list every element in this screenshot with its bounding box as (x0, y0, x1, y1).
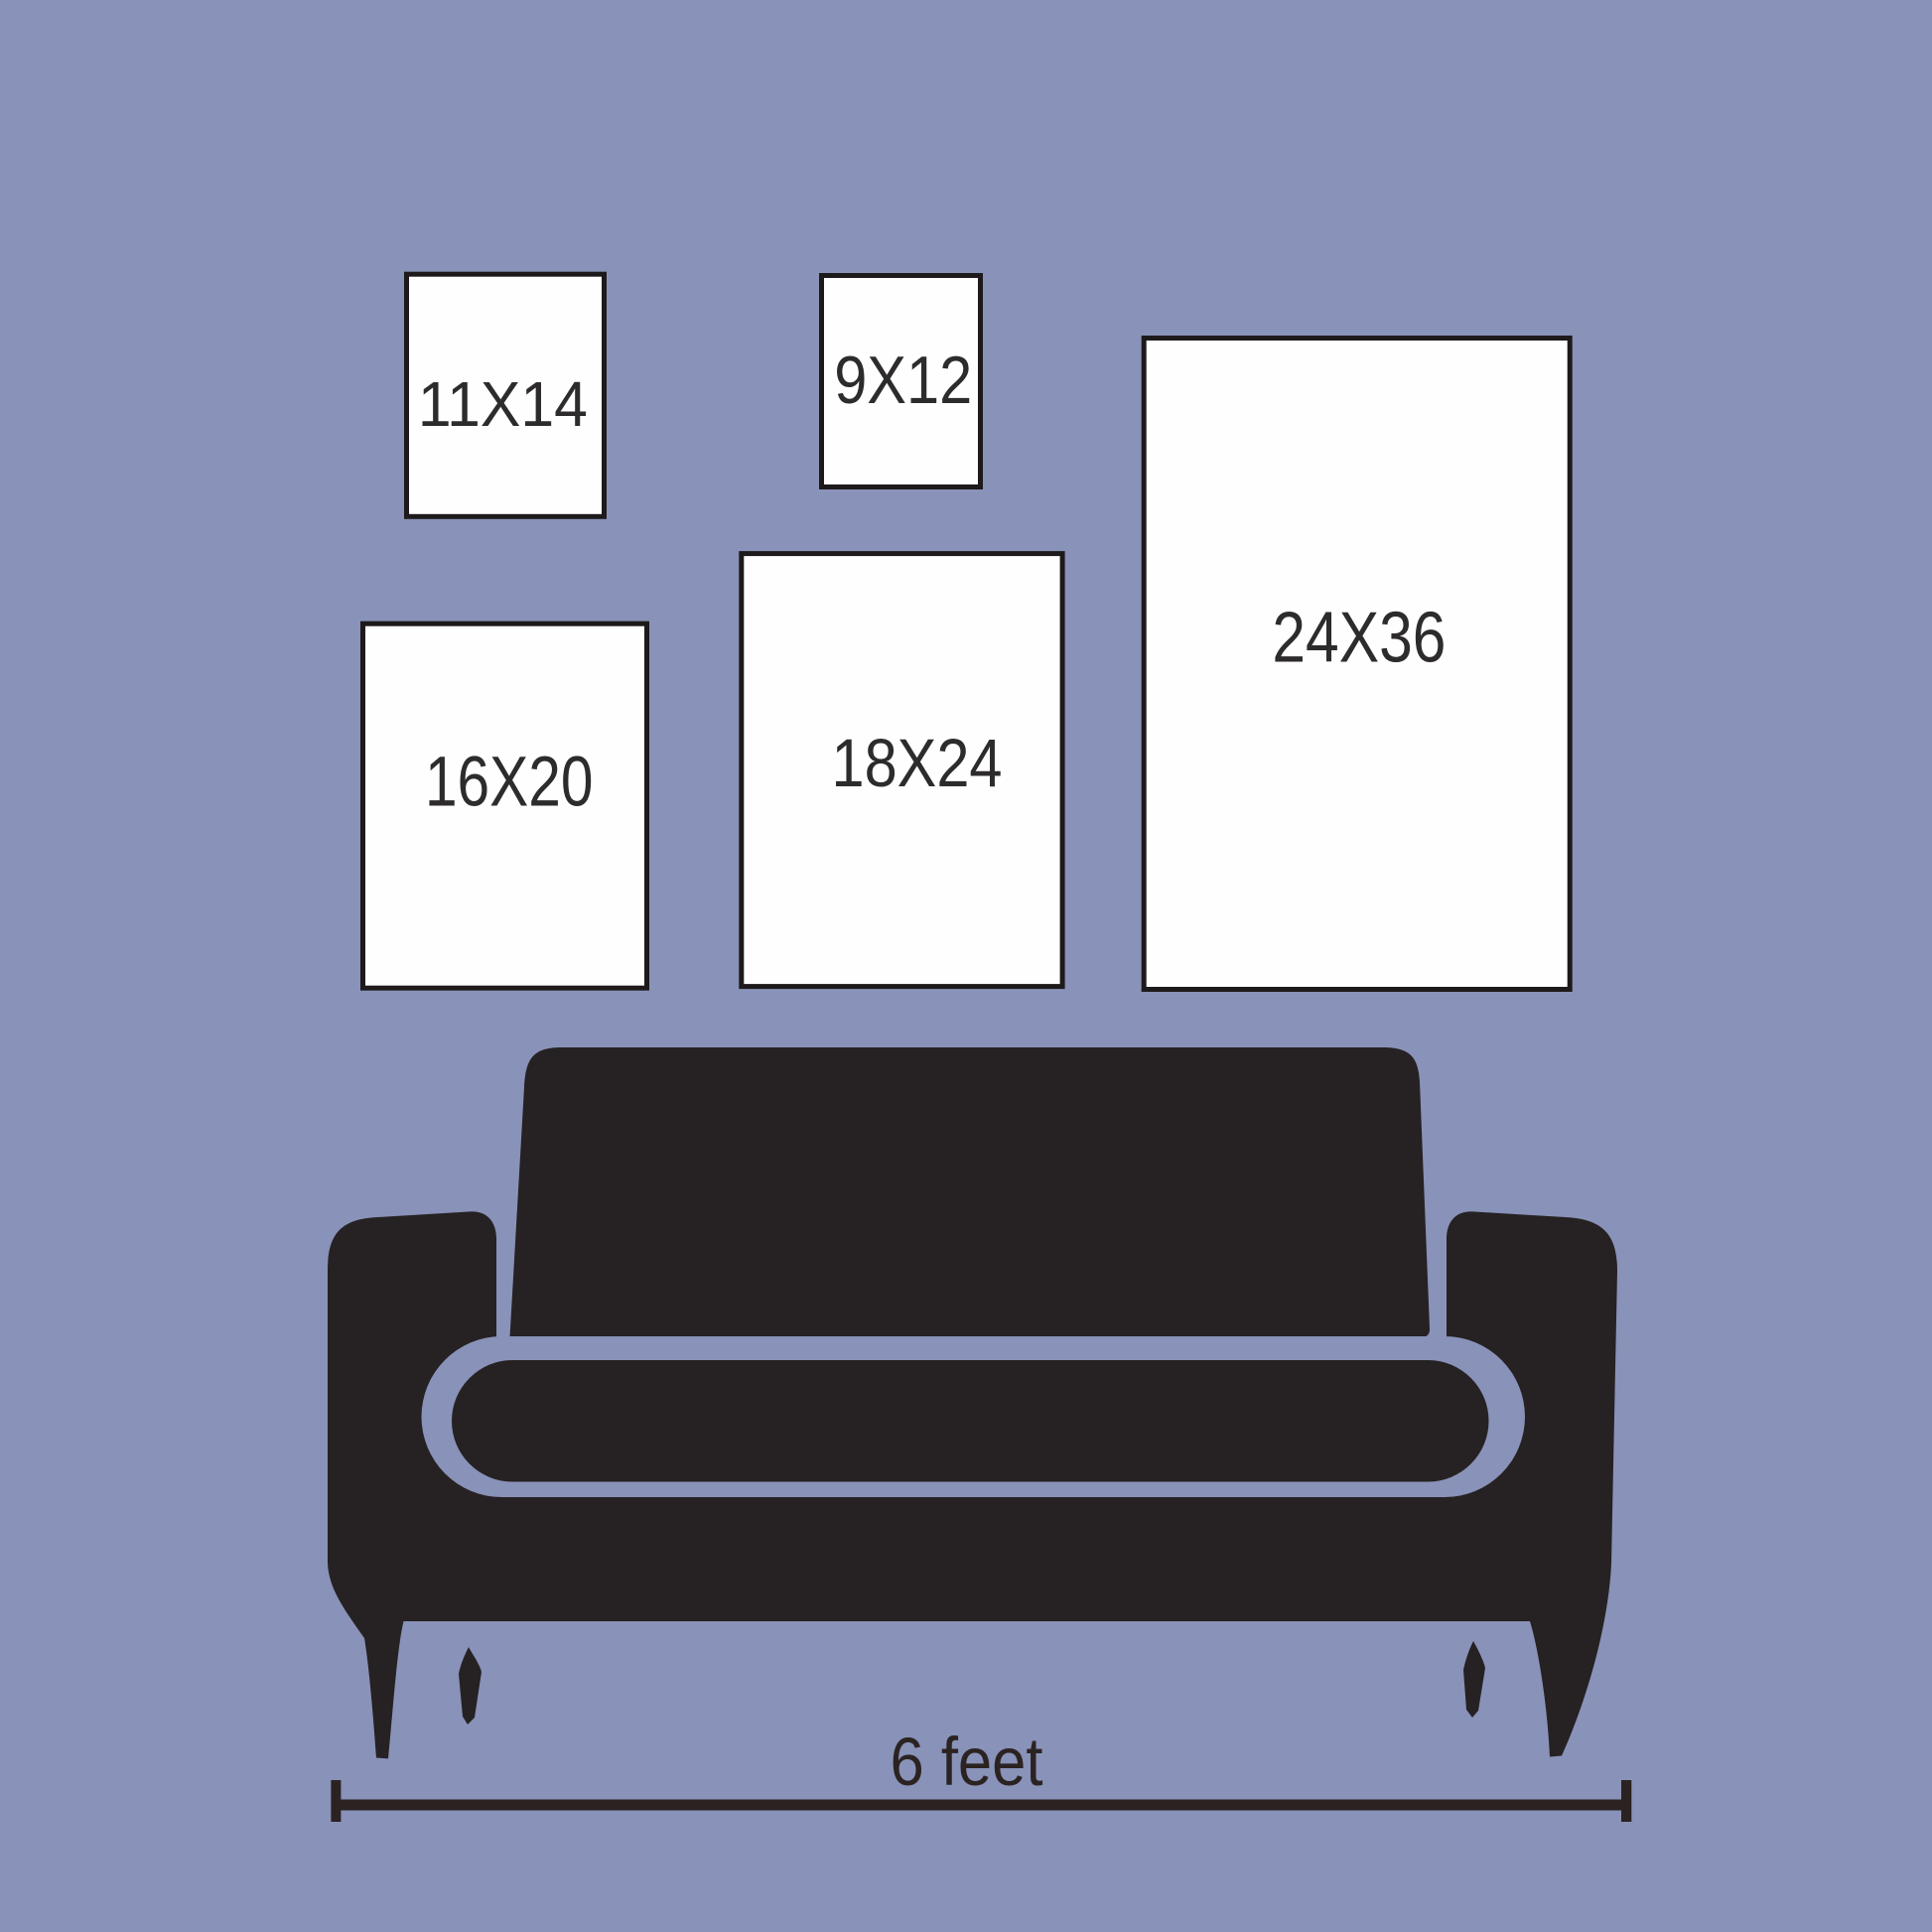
svg-text:9X12: 9X12 (834, 344, 972, 418)
svg-text:24X36: 24X36 (1272, 598, 1446, 677)
svg-text:16X20: 16X20 (425, 743, 594, 821)
svg-text:18X24: 18X24 (832, 725, 1003, 801)
svg-text:6 feet: 6 feet (891, 1724, 1043, 1800)
svg-text:11X14: 11X14 (418, 368, 588, 440)
